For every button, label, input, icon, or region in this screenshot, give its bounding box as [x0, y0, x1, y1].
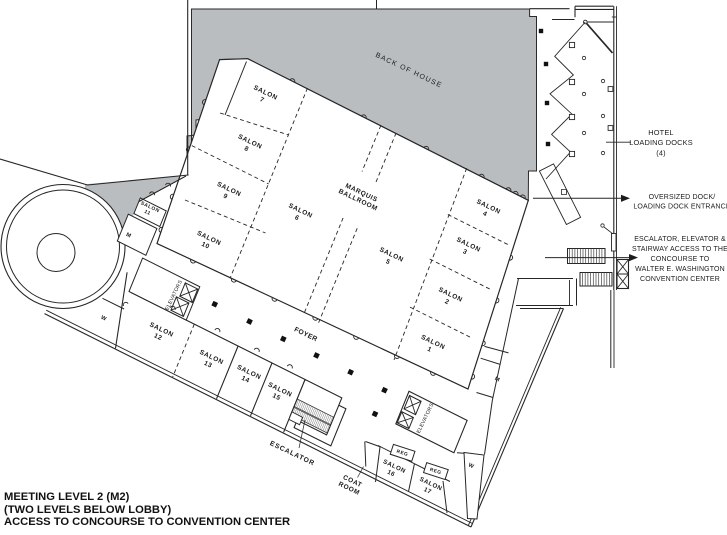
svg-text:CONCOURSE TO: CONCOURSE TO [651, 256, 710, 263]
svg-text:(4): (4) [656, 149, 665, 158]
svg-text:WALTER E. WASHINGTON: WALTER E. WASHINGTON [635, 266, 725, 273]
svg-text:ESCALATOR, ELEVATOR &: ESCALATOR, ELEVATOR & [634, 236, 726, 243]
svg-text:HOTEL: HOTEL [648, 128, 673, 137]
svg-text:CONVENTION CENTER: CONVENTION CENTER [640, 276, 720, 283]
svg-text:STAIRWAY ACCESS TO THE: STAIRWAY ACCESS TO THE [632, 246, 727, 253]
svg-text:LOADING DOCKS: LOADING DOCKS [629, 138, 693, 147]
svg-text:OVERSIZED DOCK/: OVERSIZED DOCK/ [649, 194, 716, 201]
svg-text:LOADING DOCK ENTRANCE: LOADING DOCK ENTRANCE [633, 204, 727, 211]
